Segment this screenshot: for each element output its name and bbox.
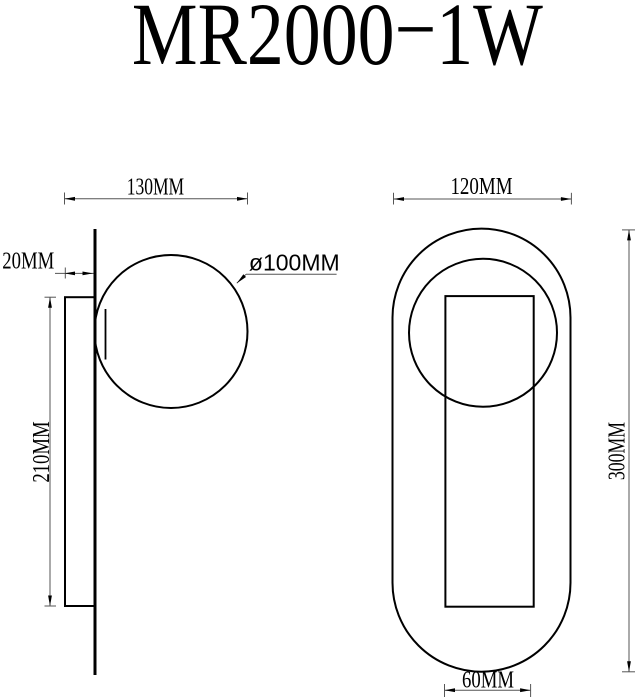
svg-text:210MM: 210MM: [28, 421, 55, 482]
svg-text:60MM: 60MM: [462, 666, 514, 693]
svg-text:300MM: 300MM: [603, 422, 630, 480]
svg-text:120MM: 120MM: [450, 173, 512, 200]
svg-text:ø100MM: ø100MM: [249, 250, 340, 276]
svg-text:20MM: 20MM: [2, 247, 54, 274]
svg-text:130MM: 130MM: [127, 173, 185, 200]
svg-text:MR2000−1W: MR2000−1W: [132, 0, 544, 84]
